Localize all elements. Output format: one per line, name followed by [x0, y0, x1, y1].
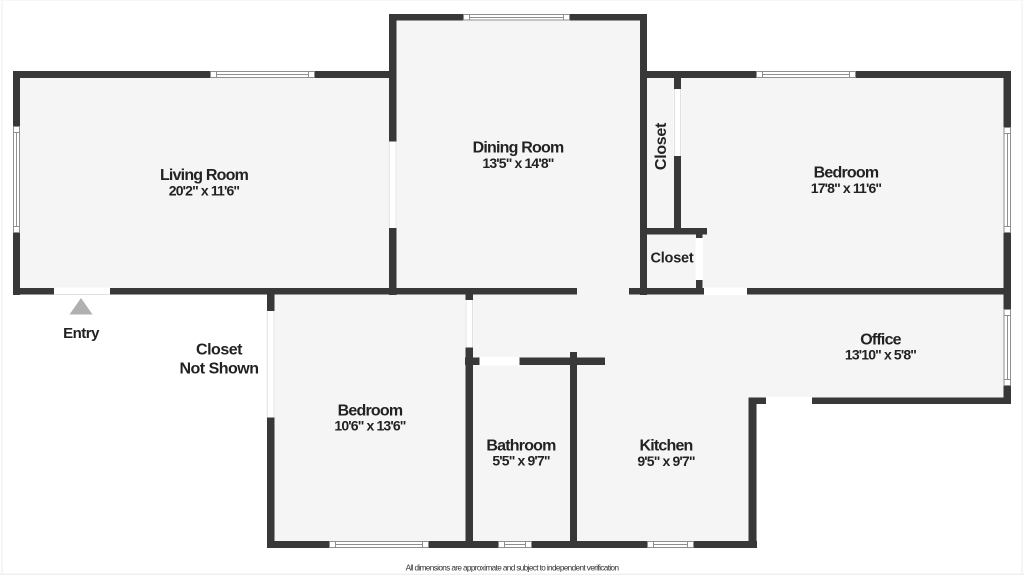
svg-text:10'6" x 13'6": 10'6" x 13'6" [334, 418, 405, 434]
svg-text:Dining Room: Dining Room [473, 140, 564, 157]
svg-text:Closet: Closet [653, 122, 670, 170]
svg-text:5'5" x 9'7": 5'5" x 9'7" [492, 453, 550, 469]
svg-text:Closet: Closet [650, 251, 693, 267]
svg-text:Closet: Closet [196, 342, 243, 359]
svg-text:9'5" x 9'7": 9'5" x 9'7" [637, 453, 695, 469]
svg-text:Living Room: Living Room [160, 167, 249, 184]
svg-text:Entry: Entry [63, 325, 100, 342]
svg-text:All dimensions are approximate: All dimensions are approximate and subje… [406, 564, 620, 573]
svg-text:13'5" x 14'8": 13'5" x 14'8" [482, 155, 553, 171]
svg-text:13'10" x 5'8": 13'10" x 5'8" [845, 347, 916, 363]
svg-text:Bedroom: Bedroom [814, 165, 879, 182]
svg-text:17'8" x 11'6": 17'8" x 11'6" [811, 180, 882, 196]
svg-text:Not Shown: Not Shown [179, 361, 258, 378]
svg-text:Kitchen: Kitchen [639, 438, 692, 455]
svg-text:20'2" x 11'6": 20'2" x 11'6" [169, 183, 240, 199]
